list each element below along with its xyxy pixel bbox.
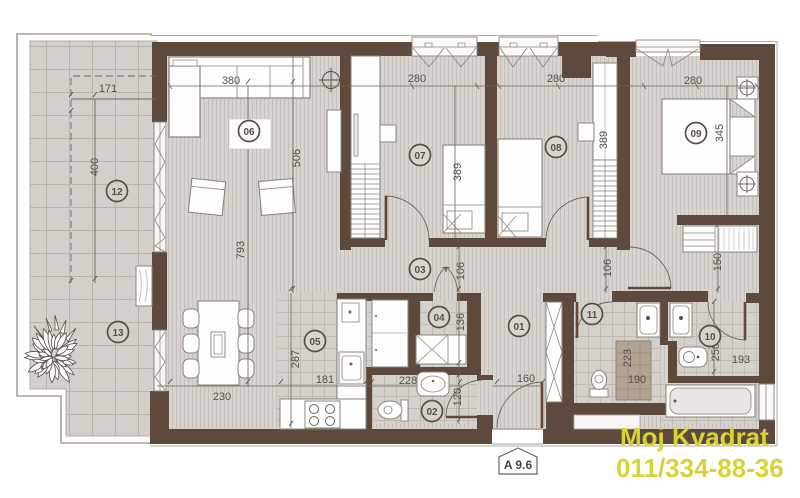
svg-text:223: 223 xyxy=(622,349,634,367)
svg-text:05: 05 xyxy=(309,337,321,348)
svg-text:160: 160 xyxy=(517,373,535,385)
svg-text:120: 120 xyxy=(452,388,464,406)
svg-text:345: 345 xyxy=(714,124,726,142)
svg-text:106: 106 xyxy=(455,262,467,280)
svg-text:011/334-88-36: 011/334-88-36 xyxy=(616,453,784,483)
svg-text:171: 171 xyxy=(99,83,117,95)
svg-text:04: 04 xyxy=(433,313,445,324)
svg-text:181: 181 xyxy=(316,374,334,386)
svg-text:230: 230 xyxy=(213,391,231,403)
svg-text:380: 380 xyxy=(222,75,240,87)
svg-text:793: 793 xyxy=(235,241,247,259)
svg-text:10: 10 xyxy=(704,332,716,343)
svg-text:06: 06 xyxy=(243,127,255,138)
svg-text:190: 190 xyxy=(628,374,646,386)
svg-text:01: 01 xyxy=(513,322,525,333)
svg-text:389: 389 xyxy=(452,163,464,181)
svg-text:280: 280 xyxy=(547,73,565,85)
svg-text:07: 07 xyxy=(414,151,426,162)
svg-text:280: 280 xyxy=(684,75,702,87)
svg-text:02: 02 xyxy=(426,407,438,418)
svg-text:03: 03 xyxy=(414,265,426,276)
svg-text:106: 106 xyxy=(602,259,614,277)
svg-text:13: 13 xyxy=(112,328,124,339)
svg-text:228: 228 xyxy=(399,375,417,387)
svg-text:506: 506 xyxy=(291,149,303,167)
svg-text:389: 389 xyxy=(598,131,610,149)
svg-text:193: 193 xyxy=(732,354,750,366)
svg-text:A 9.6: A 9.6 xyxy=(504,458,533,472)
svg-text:150: 150 xyxy=(712,253,724,271)
svg-text:136: 136 xyxy=(455,313,467,331)
svg-text:287: 287 xyxy=(290,350,302,368)
svg-text:11: 11 xyxy=(587,310,598,321)
svg-text:Moj Kvadrat: Moj Kvadrat xyxy=(620,422,769,452)
svg-text:08: 08 xyxy=(550,143,562,154)
svg-text:12: 12 xyxy=(111,187,123,198)
svg-text:400: 400 xyxy=(89,158,101,176)
svg-text:09: 09 xyxy=(690,129,702,140)
svg-text:280: 280 xyxy=(408,73,426,85)
